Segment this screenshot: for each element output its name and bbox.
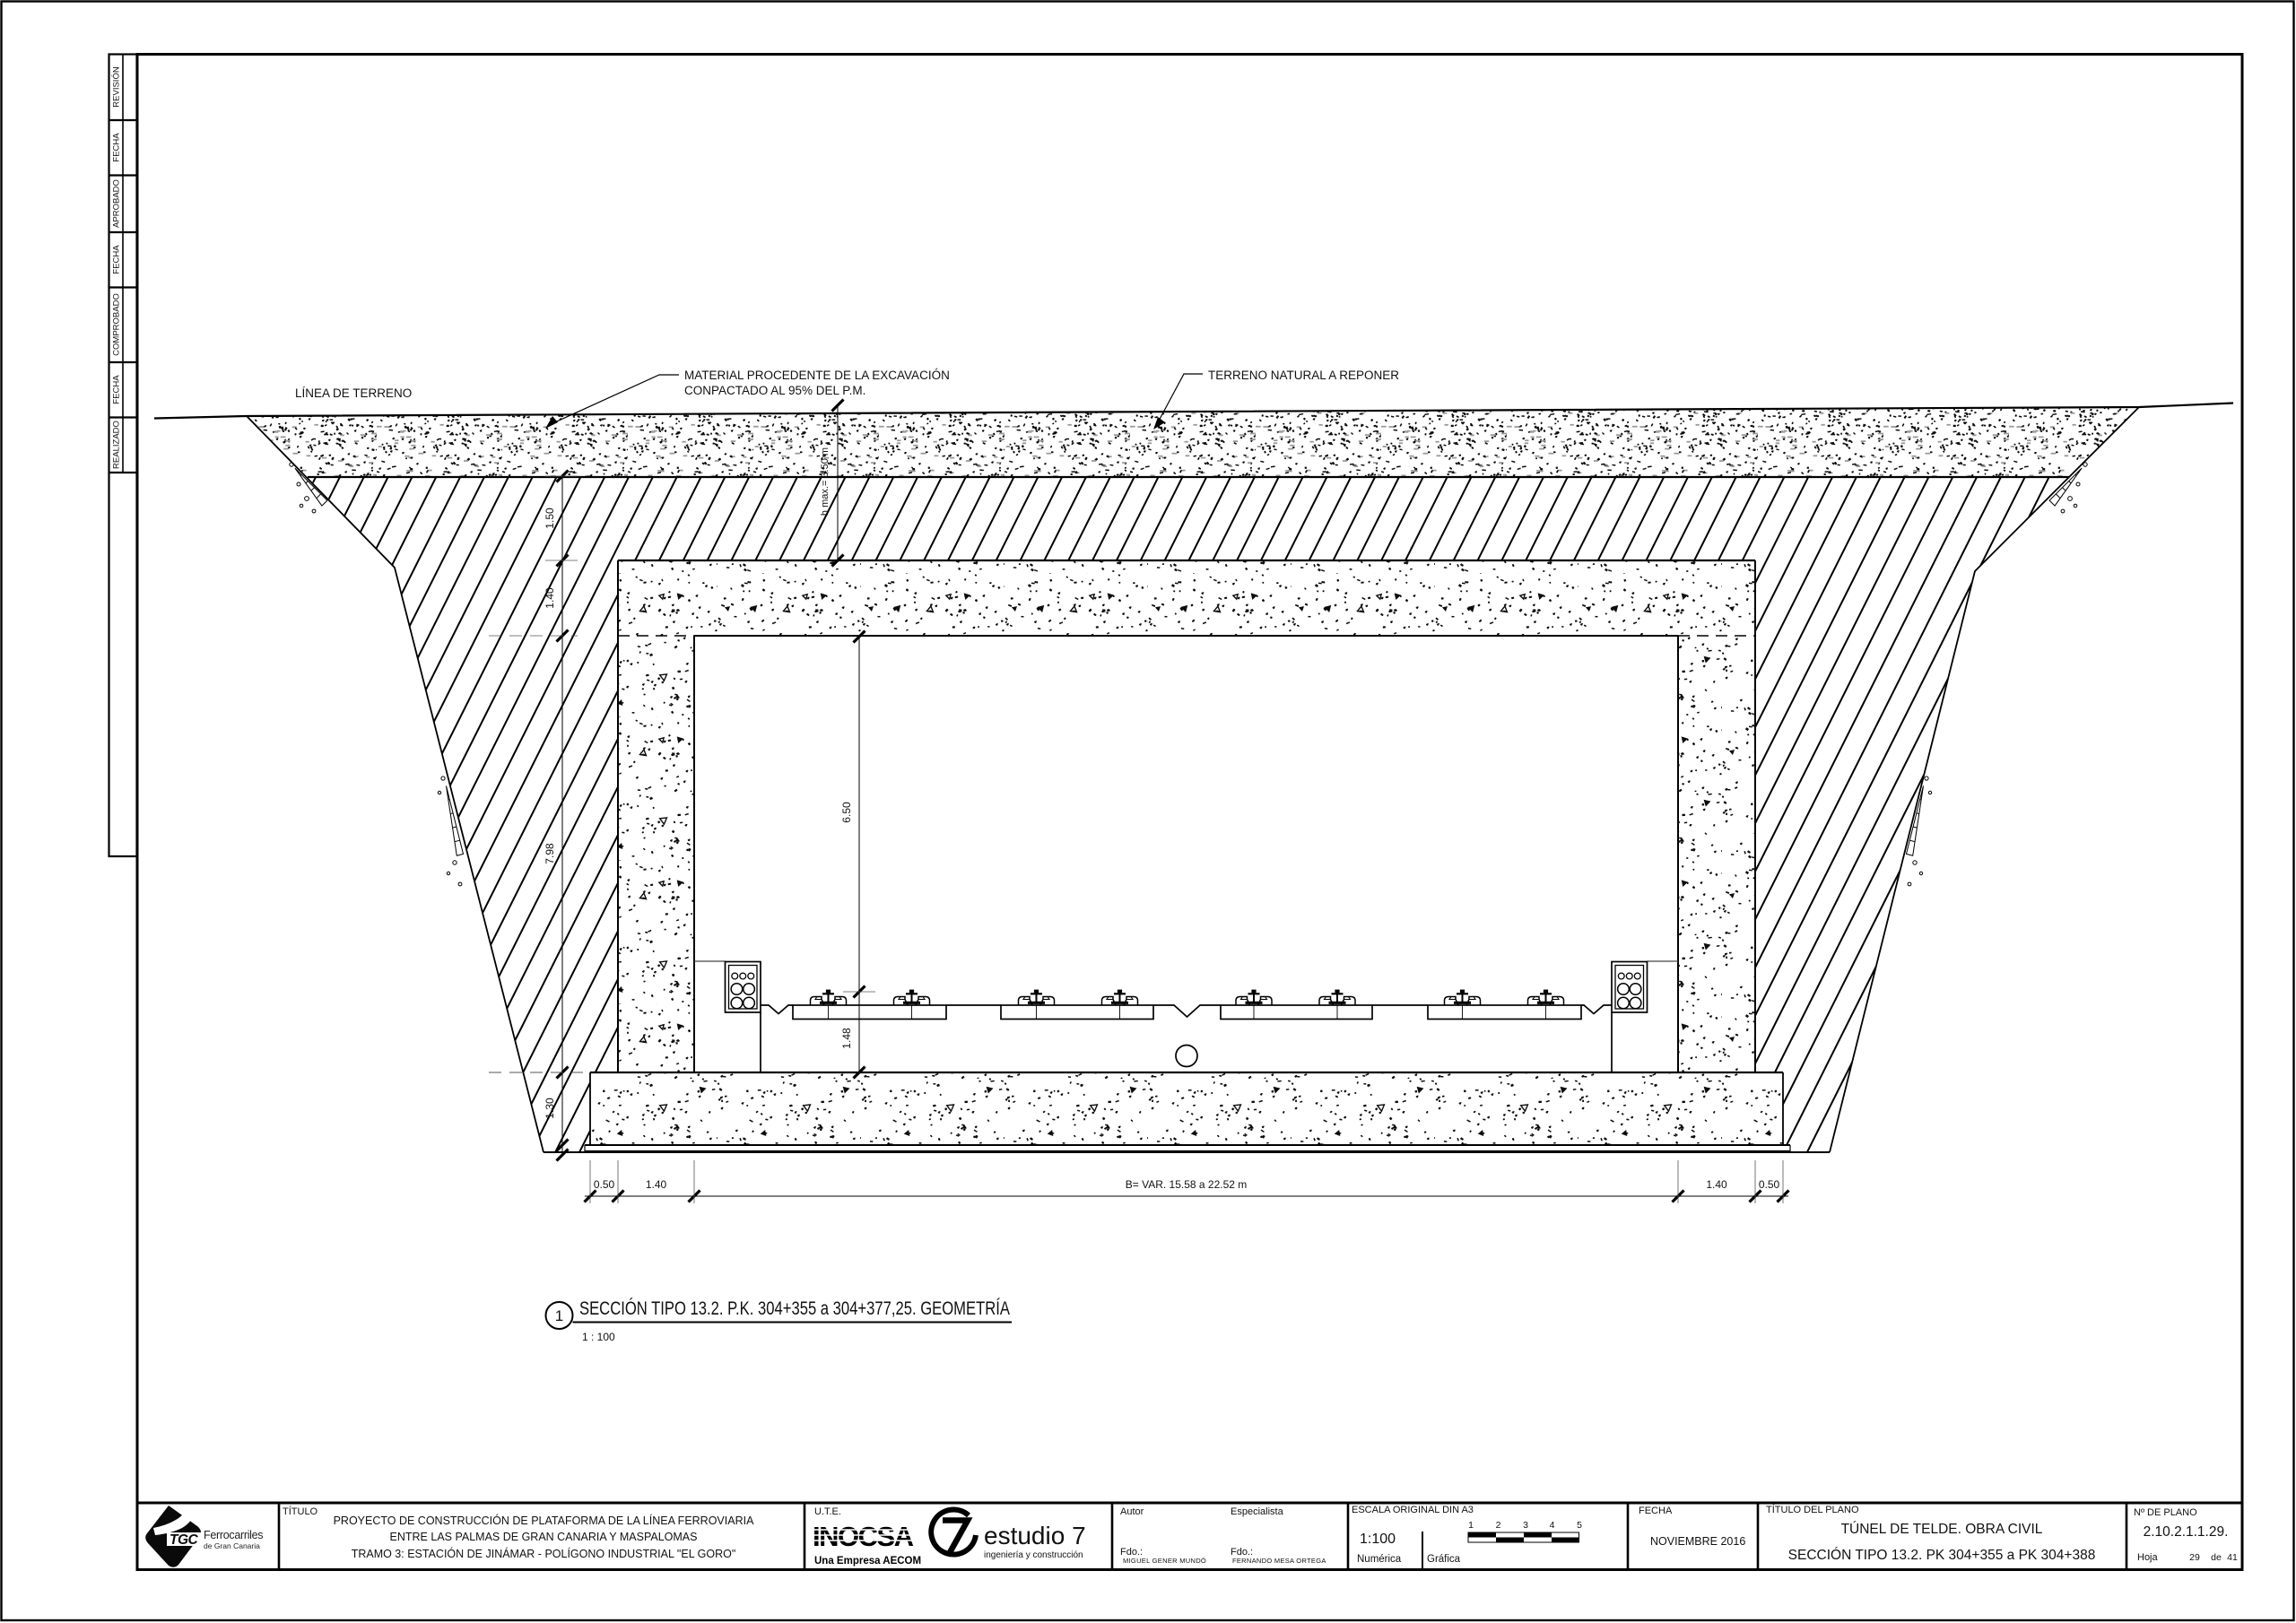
svg-text:3: 3 [1523,1520,1528,1531]
svg-text:Ferrocarriles: Ferrocarriles [204,1529,263,1541]
svg-text:FECHA: FECHA [112,375,122,404]
svg-text:1.30: 1.30 [544,1098,556,1119]
svg-text:1:100: 1:100 [1360,1532,1396,1547]
svg-text:0.50: 0.50 [594,1178,615,1191]
svg-text:h max.= 3.50 m: h max.= 3.50 m [820,447,831,516]
svg-text:1.40: 1.40 [1706,1178,1727,1191]
svg-text:TERRENO NATURAL A REPONER: TERRENO NATURAL A REPONER [1208,369,1399,382]
svg-text:COMPROBADO: COMPROBADO [112,293,122,356]
svg-text:Gráfica: Gráfica [1427,1554,1461,1565]
svg-text:1.40: 1.40 [646,1178,667,1191]
svg-text:Autor: Autor [1120,1506,1144,1517]
svg-text:REVISIÓN: REVISIÓN [112,66,122,108]
svg-text:CONPACTADO AL 95% DEL P.M.: CONPACTADO AL 95% DEL P.M. [684,384,865,397]
svg-text:PROYECTO DE CONSTRUCCIÓN DE PL: PROYECTO DE CONSTRUCCIÓN DE PLATAFORMA D… [334,1514,755,1527]
svg-text:4: 4 [1550,1520,1555,1531]
svg-text:FECHA: FECHA [112,133,122,162]
svg-text:Nº DE PLANO: Nº DE PLANO [2134,1507,2197,1518]
svg-text:TÍTULO DEL PLANO: TÍTULO DEL PLANO [1766,1504,1859,1515]
svg-text:2: 2 [1496,1520,1501,1531]
svg-text:Una Empresa AECOM: Una Empresa AECOM [814,1556,921,1567]
svg-text:2.10.2.1.1.29.: 2.10.2.1.1.29. [2144,1524,2229,1540]
svg-text:de Gran Canaria: de Gran Canaria [204,1541,260,1550]
svg-text:LÍNEA DE TERRENO: LÍNEA DE TERRENO [295,386,412,400]
svg-text:FECHA: FECHA [1639,1506,1673,1516]
svg-text:5: 5 [1577,1520,1582,1531]
svg-text:TÚNEL DE TELDE. OBRA CIVIL: TÚNEL DE TELDE. OBRA CIVIL [1841,1522,2043,1537]
svg-text:FERNANDO MESA ORTEGA: FERNANDO MESA ORTEGA [1232,1557,1326,1565]
svg-text:TGC: TGC [170,1532,199,1548]
svg-text:B= VAR. 15.58 a 22.52 m: B= VAR. 15.58 a 22.52 m [1126,1178,1248,1191]
svg-text:Numérica: Numérica [1357,1554,1402,1565]
svg-text:ESCALA ORIGINAL DIN A3: ESCALA ORIGINAL DIN A3 [1352,1505,1474,1515]
svg-text:SECCIÓN TIPO 13.2. PK 304+355: SECCIÓN TIPO 13.2. PK 304+355 a PK 304+3… [1788,1548,2096,1563]
svg-text:APROBADO: APROBADO [112,179,122,228]
svg-text:NOVIEMBRE 2016: NOVIEMBRE 2016 [1650,1535,1745,1548]
svg-text:1.40: 1.40 [544,587,556,609]
svg-text:1.48: 1.48 [840,1028,853,1049]
svg-text:6.50: 6.50 [840,802,853,823]
svg-text:1 : 100: 1 : 100 [582,1331,615,1343]
svg-text:U.T.E.: U.T.E. [814,1506,841,1517]
svg-text:Especialista: Especialista [1231,1506,1284,1517]
svg-text:TRAMO 3: ESTACIÓN DE JINÁMAR -: TRAMO 3: ESTACIÓN DE JINÁMAR - POLÍGONO … [352,1547,736,1560]
svg-text:1.50: 1.50 [544,508,556,529]
svg-text:MIGUEL GENER MUNDÓ: MIGUEL GENER MUNDÓ [1123,1557,1206,1565]
svg-text:FECHA: FECHA [112,245,122,274]
svg-text:de: de [2211,1552,2222,1563]
svg-text:Hoja: Hoja [2137,1552,2159,1563]
svg-text:29: 29 [2189,1552,2200,1563]
svg-text:1: 1 [555,1307,563,1324]
svg-text:0.50: 0.50 [1759,1178,1780,1191]
svg-text:estudio 7: estudio 7 [984,1522,1086,1549]
svg-text:1: 1 [1468,1520,1474,1531]
svg-text:7.98: 7.98 [544,843,556,864]
svg-text:TÍTULO: TÍTULO [283,1506,318,1517]
svg-text:ENTRE LAS PALMAS DE GRAN CANAR: ENTRE LAS PALMAS DE GRAN CANARIA Y MASPA… [390,1531,698,1543]
svg-text:INOCSA: INOCSA [813,1521,914,1552]
svg-text:MATERIAL PROCEDENTE DE LA EXCA: MATERIAL PROCEDENTE DE LA EXCAVACIÓN [684,369,950,382]
svg-text:SECCIÓN TIPO 13.2. P.K. 304+35: SECCIÓN TIPO 13.2. P.K. 304+355 a 304+37… [579,1297,1011,1319]
svg-text:REALIZADO: REALIZADO [112,421,122,469]
svg-text:41: 41 [2227,1552,2238,1563]
svg-text:ingeniería y construcción: ingeniería y construcción [984,1550,1083,1560]
